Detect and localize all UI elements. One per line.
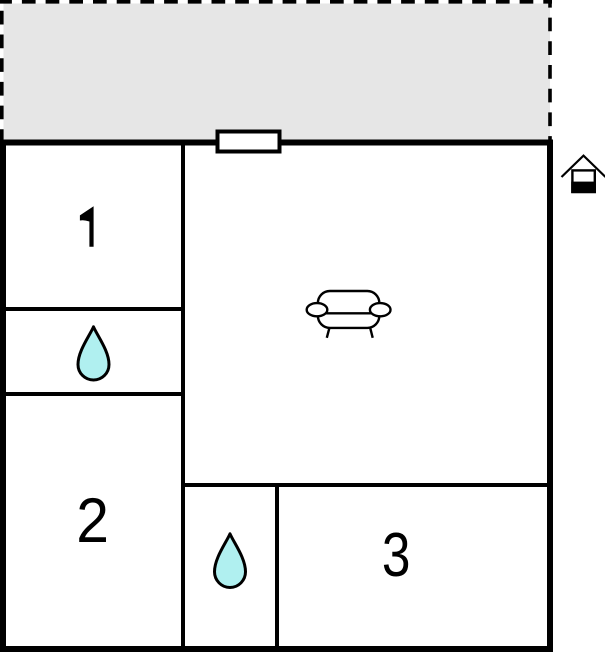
svg-text:2: 2 (76, 485, 109, 555)
svg-text:3: 3 (382, 520, 411, 590)
